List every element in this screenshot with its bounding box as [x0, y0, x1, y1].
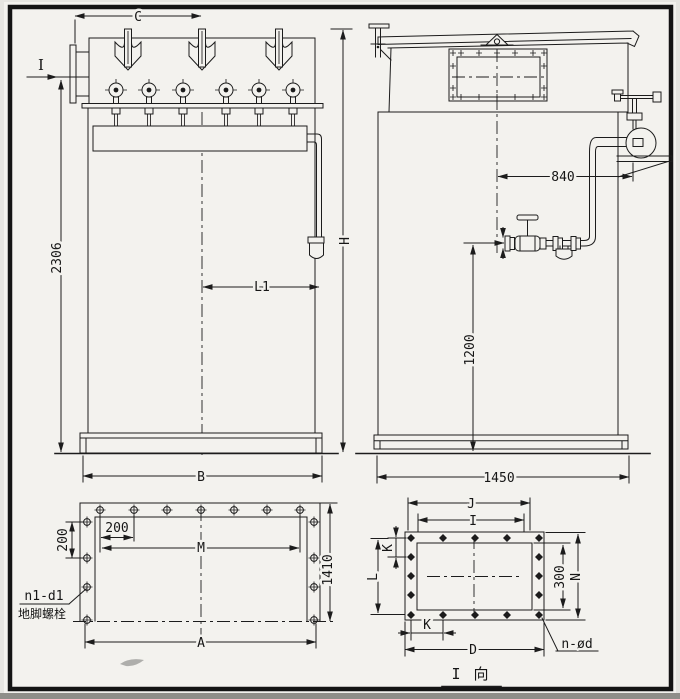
base-skirt — [374, 435, 628, 449]
scanned-drawing-page: C I 2306 L1 B H — [0, 0, 680, 699]
air-manifold — [93, 126, 307, 151]
dim-k-bottom: K — [423, 618, 431, 633]
dim-l1: L1 — [254, 280, 270, 295]
base-skirt — [80, 433, 322, 453]
dim-840: 840 — [551, 170, 574, 185]
dim-h: H — [338, 237, 353, 245]
anchor-bolt-label: 地脚螺栓 — [18, 606, 66, 621]
page-bottom-band — [0, 693, 680, 699]
dim-2306: 2306 — [50, 242, 65, 273]
technical-drawing: C I 2306 L1 B H — [0, 0, 680, 699]
dim-i: I — [469, 514, 477, 529]
view-i-caption: I 向 — [451, 665, 490, 683]
bolt-hole-note: n-ød — [561, 637, 592, 652]
dim-m: M — [197, 541, 205, 556]
inlet-flange — [70, 45, 76, 103]
filter-trap-icon — [556, 249, 572, 259]
dim-n: N — [569, 573, 584, 581]
dim-a: A — [197, 636, 205, 651]
drain-cap — [308, 237, 324, 243]
dim-j: J — [467, 497, 475, 512]
dim-1450: 1450 — [483, 471, 514, 486]
dim-d: D — [469, 643, 477, 658]
dim-300: 300 — [553, 565, 568, 588]
dim-200-vertical: 200 — [56, 528, 71, 551]
anchor-bolt-code: n1-d1 — [24, 589, 63, 604]
dim-b: B — [197, 470, 205, 485]
valve-rail — [82, 104, 323, 109]
dim-1200: 1200 — [463, 334, 478, 365]
dim-l: L — [366, 573, 381, 581]
drain-cup-icon — [310, 243, 324, 259]
view-arrow-label: I — [38, 56, 44, 74]
dim-c: C — [134, 10, 142, 25]
dim-200-horizontal: 200 — [105, 521, 128, 536]
dim-1410: 1410 — [321, 554, 336, 585]
valve-handwheel-icon — [517, 215, 538, 220]
dim-k-top: K — [381, 544, 396, 552]
